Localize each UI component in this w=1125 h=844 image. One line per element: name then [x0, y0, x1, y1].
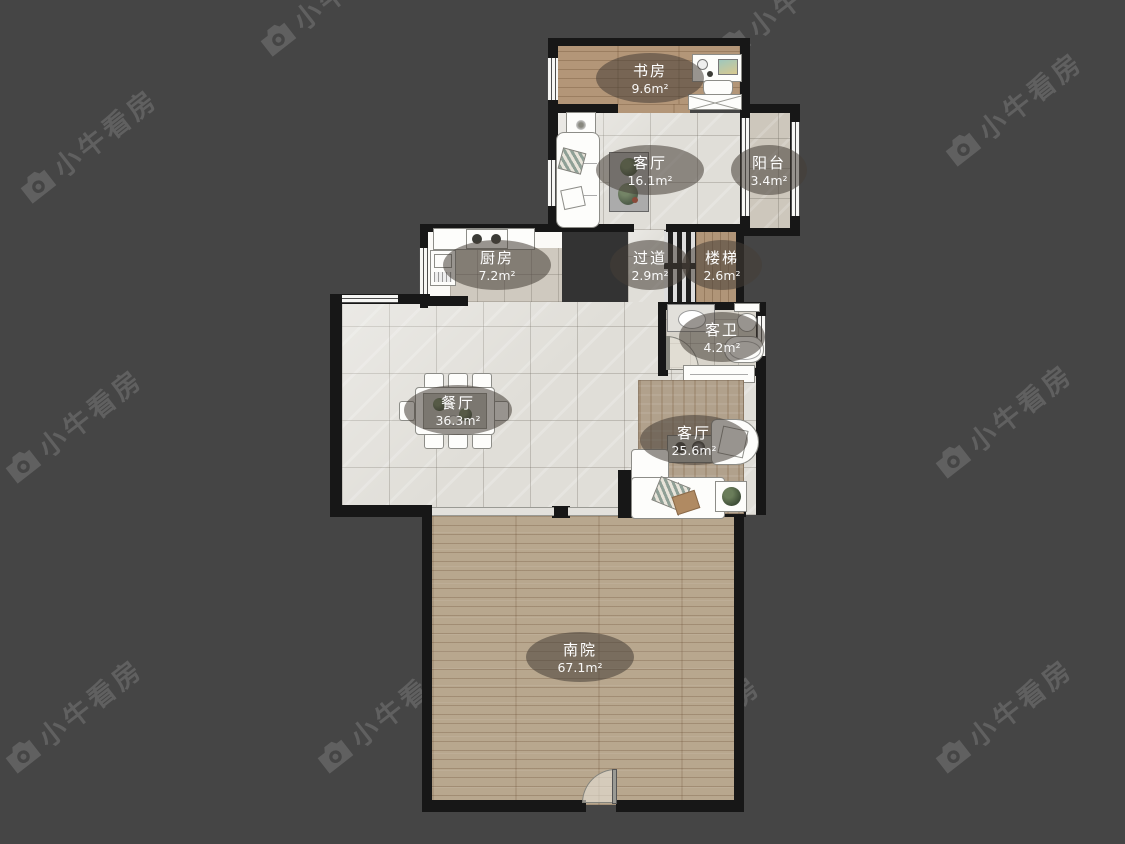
- wall-segment: [330, 505, 432, 517]
- watermark: 小牛看房: [936, 41, 1091, 174]
- room-area: 2.9m²: [631, 268, 668, 283]
- camera-icon: [310, 732, 357, 778]
- watermark-text: 小牛看房: [959, 648, 1081, 755]
- room-name: 客厅: [677, 422, 711, 443]
- room-label-guest-bath: 客卫 4.2m²: [679, 312, 765, 362]
- room-label-south-yard: 南院 67.1m²: [526, 632, 634, 682]
- room-name: 楼梯: [705, 247, 739, 268]
- room-label-dining: 餐厅 36.3m²: [404, 385, 512, 435]
- window-kitchen: [419, 248, 428, 294]
- window-dining: [342, 295, 398, 303]
- room-area: 3.4m²: [750, 173, 787, 188]
- room-area: 25.6m²: [671, 443, 716, 458]
- wall-segment: [422, 800, 586, 812]
- wall-segment: [740, 228, 800, 236]
- decor-dot: [632, 197, 638, 203]
- camera-icon: [928, 437, 975, 483]
- room-label-stairs: 楼梯 2.6m²: [682, 240, 762, 290]
- room-label-living-lower: 客厅 25.6m²: [640, 415, 748, 465]
- watermark: 小牛看房: [11, 78, 166, 211]
- camera-icon: [0, 732, 45, 778]
- wardrobe-cross-icon: [689, 96, 741, 110]
- room-area: 36.3m²: [435, 413, 480, 428]
- wall-segment: [658, 302, 666, 372]
- room-area: 67.1m²: [557, 660, 602, 675]
- sliding-door-threshold: [432, 507, 554, 516]
- plant-stand: [715, 481, 747, 512]
- room-name: 厨房: [480, 247, 514, 268]
- dining-chair: [448, 433, 468, 449]
- watermark: 小牛看房: [926, 648, 1081, 781]
- watermark: 小牛看房: [0, 358, 150, 491]
- room-name: 客卫: [705, 319, 739, 340]
- camera-icon: [253, 15, 300, 61]
- room-area: 9.6m²: [631, 81, 668, 96]
- wall-segment: [618, 470, 632, 518]
- toilet-tank: [734, 303, 760, 312]
- wall-segment: [330, 294, 342, 516]
- camera-icon: [0, 442, 45, 488]
- door-leaf-yard: [612, 769, 617, 804]
- room-label-living-upper: 客厅 16.1m²: [596, 145, 704, 195]
- dining-chair: [472, 433, 492, 449]
- room-area: 16.1m²: [627, 173, 672, 188]
- camera-icon: [928, 732, 975, 778]
- door-leaf-bath: [666, 336, 670, 370]
- wall-segment: [422, 505, 432, 812]
- room-name: 过道: [633, 247, 667, 268]
- room-name: 餐厅: [441, 392, 475, 413]
- room-label-study: 书房 9.6m²: [596, 53, 704, 103]
- wall-segment: [666, 224, 740, 232]
- wall-segment: [616, 800, 744, 812]
- watermark-text: 小牛看房: [44, 78, 166, 185]
- desk-cup: [707, 71, 713, 77]
- room-name: 客厅: [633, 152, 667, 173]
- watermark: 小牛看房: [251, 0, 406, 64]
- wardrobe: [688, 94, 742, 110]
- room-name: 阳台: [752, 152, 786, 173]
- watermark: 小牛看房: [926, 353, 1081, 486]
- watermark-text: 小牛看房: [969, 41, 1091, 148]
- picture-motif: [576, 120, 586, 130]
- room-label-hallway: 过道 2.9m²: [610, 240, 690, 290]
- room-name: 南院: [563, 639, 597, 660]
- floorplan-canvas: 小牛看房小牛看房小牛看房小牛看房小牛看房小牛看房小牛看房小牛看房小牛看房小牛看房…: [0, 0, 1125, 844]
- sliding-door-threshold: [568, 507, 618, 516]
- room-label-kitchen: 厨房 7.2m²: [443, 240, 551, 290]
- window: [547, 58, 558, 100]
- room-area: 4.2m²: [703, 340, 740, 355]
- watermark-text: 小牛看房: [959, 353, 1081, 460]
- room-area: 7.2m²: [478, 268, 515, 283]
- watermark-text: 小牛看房: [739, 0, 861, 45]
- desk-monitor: [718, 59, 738, 75]
- wall-segment: [548, 38, 750, 46]
- watermark-text: 小牛看房: [29, 648, 151, 755]
- camera-icon: [938, 125, 985, 171]
- room-area: 2.6m²: [703, 268, 740, 283]
- plant: [722, 487, 741, 506]
- console-line: [690, 374, 748, 375]
- room-name: 书房: [633, 60, 667, 81]
- watermark-text: 小牛看房: [284, 0, 406, 38]
- room-label-balcony: 阳台 3.4m²: [731, 145, 807, 195]
- watermark-text: 小牛看房: [29, 358, 151, 465]
- watermark: 小牛看房: [0, 648, 150, 781]
- dining-chair: [424, 433, 444, 449]
- wall-segment: [734, 505, 744, 812]
- camera-icon: [13, 162, 60, 208]
